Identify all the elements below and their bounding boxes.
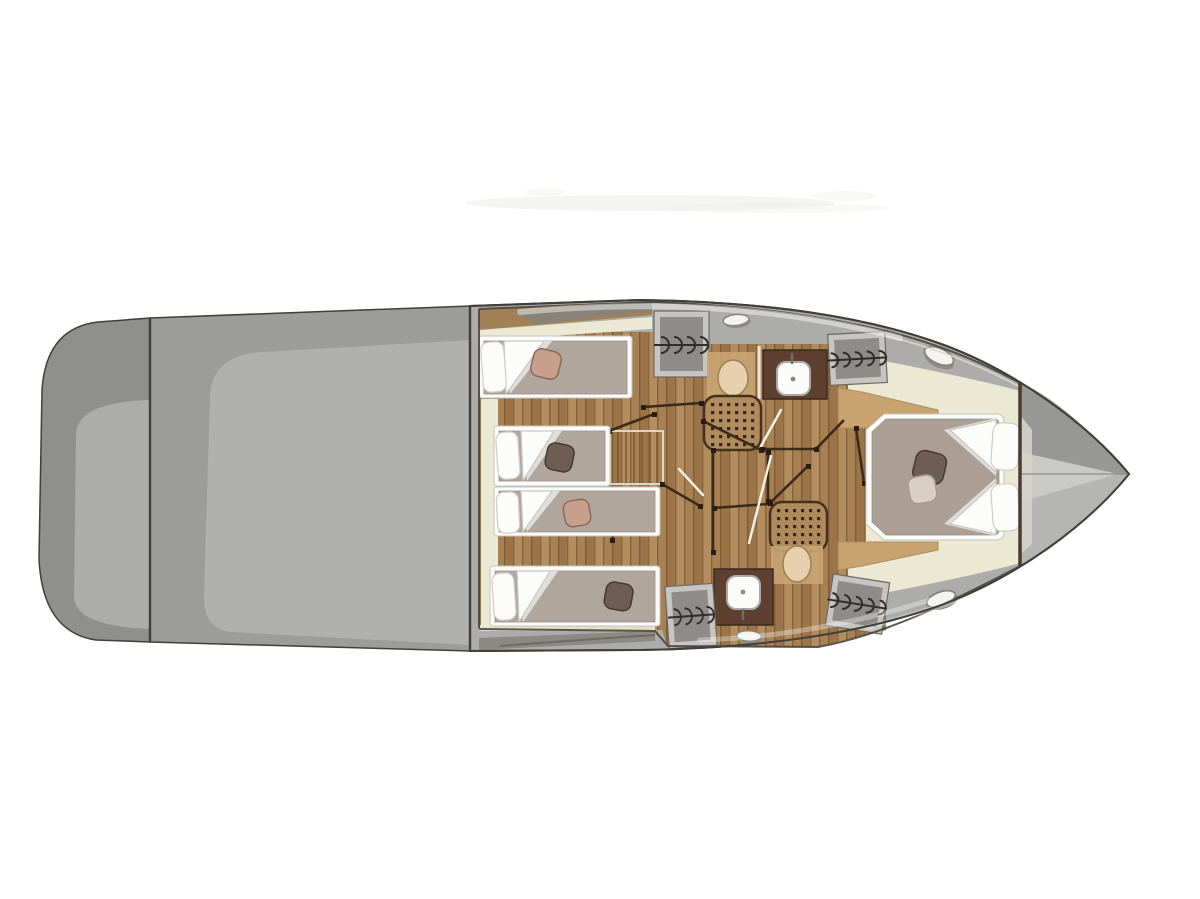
pillow xyxy=(990,483,1020,532)
pillow xyxy=(480,341,506,392)
washbasin-starboard xyxy=(763,350,827,399)
yacht-floor-plan-image xyxy=(0,0,1200,899)
toilet-port xyxy=(771,546,823,584)
companionway-stairs xyxy=(610,431,663,484)
pillow xyxy=(496,491,520,533)
swim-platform xyxy=(39,318,150,642)
shower-port xyxy=(770,502,827,551)
wardrobe-1 xyxy=(654,311,709,377)
single-berth-2 xyxy=(494,426,610,486)
aft-deck xyxy=(150,306,470,651)
single-berth-3 xyxy=(494,487,660,536)
decor-cushion xyxy=(544,441,576,473)
pillow xyxy=(495,431,520,479)
shower-starboard xyxy=(704,396,761,450)
master-island-bed xyxy=(866,414,1021,540)
decor-cushion xyxy=(562,498,592,528)
toilet-starboard xyxy=(707,346,759,399)
pillow xyxy=(990,422,1020,471)
bulkhead-ledge xyxy=(1021,416,1032,554)
yacht-deck-plan xyxy=(0,0,1200,899)
decor-cushion xyxy=(907,474,938,505)
washbasin-port xyxy=(714,569,773,625)
single-berth-1 xyxy=(479,336,632,398)
wardrobe-2 xyxy=(826,331,889,385)
pillow xyxy=(491,572,516,620)
single-berth-4 xyxy=(490,566,660,626)
decor-cushion xyxy=(603,581,634,612)
